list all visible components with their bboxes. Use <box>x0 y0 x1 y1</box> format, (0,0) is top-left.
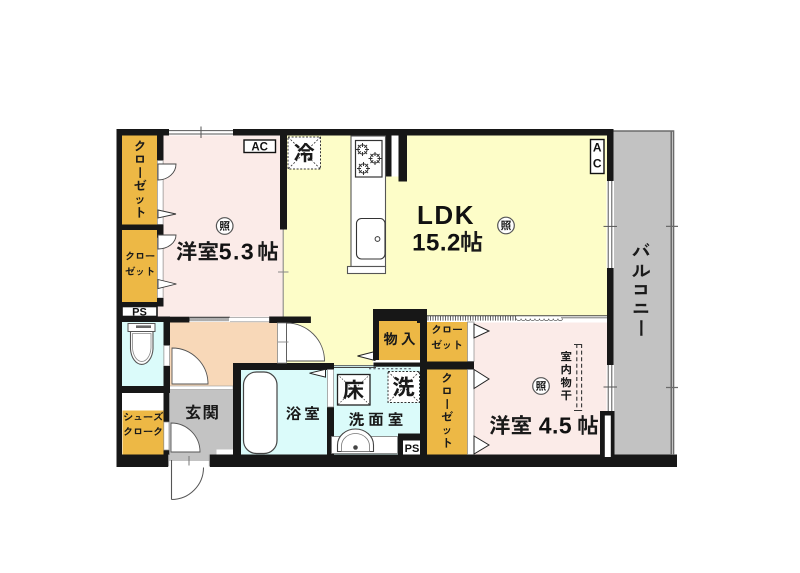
svg-text:4.5: 4.5 <box>539 413 572 439</box>
svg-text:AC: AC <box>251 141 268 153</box>
svg-text:LDK: LDK <box>417 200 475 230</box>
svg-text:C: C <box>593 157 602 171</box>
svg-text:5.3: 5.3 <box>219 239 255 265</box>
svg-text:PS: PS <box>132 306 147 318</box>
svg-text:PS: PS <box>405 443 420 455</box>
svg-text:15.2: 15.2 <box>412 229 461 256</box>
svg-text:A: A <box>593 141 602 155</box>
